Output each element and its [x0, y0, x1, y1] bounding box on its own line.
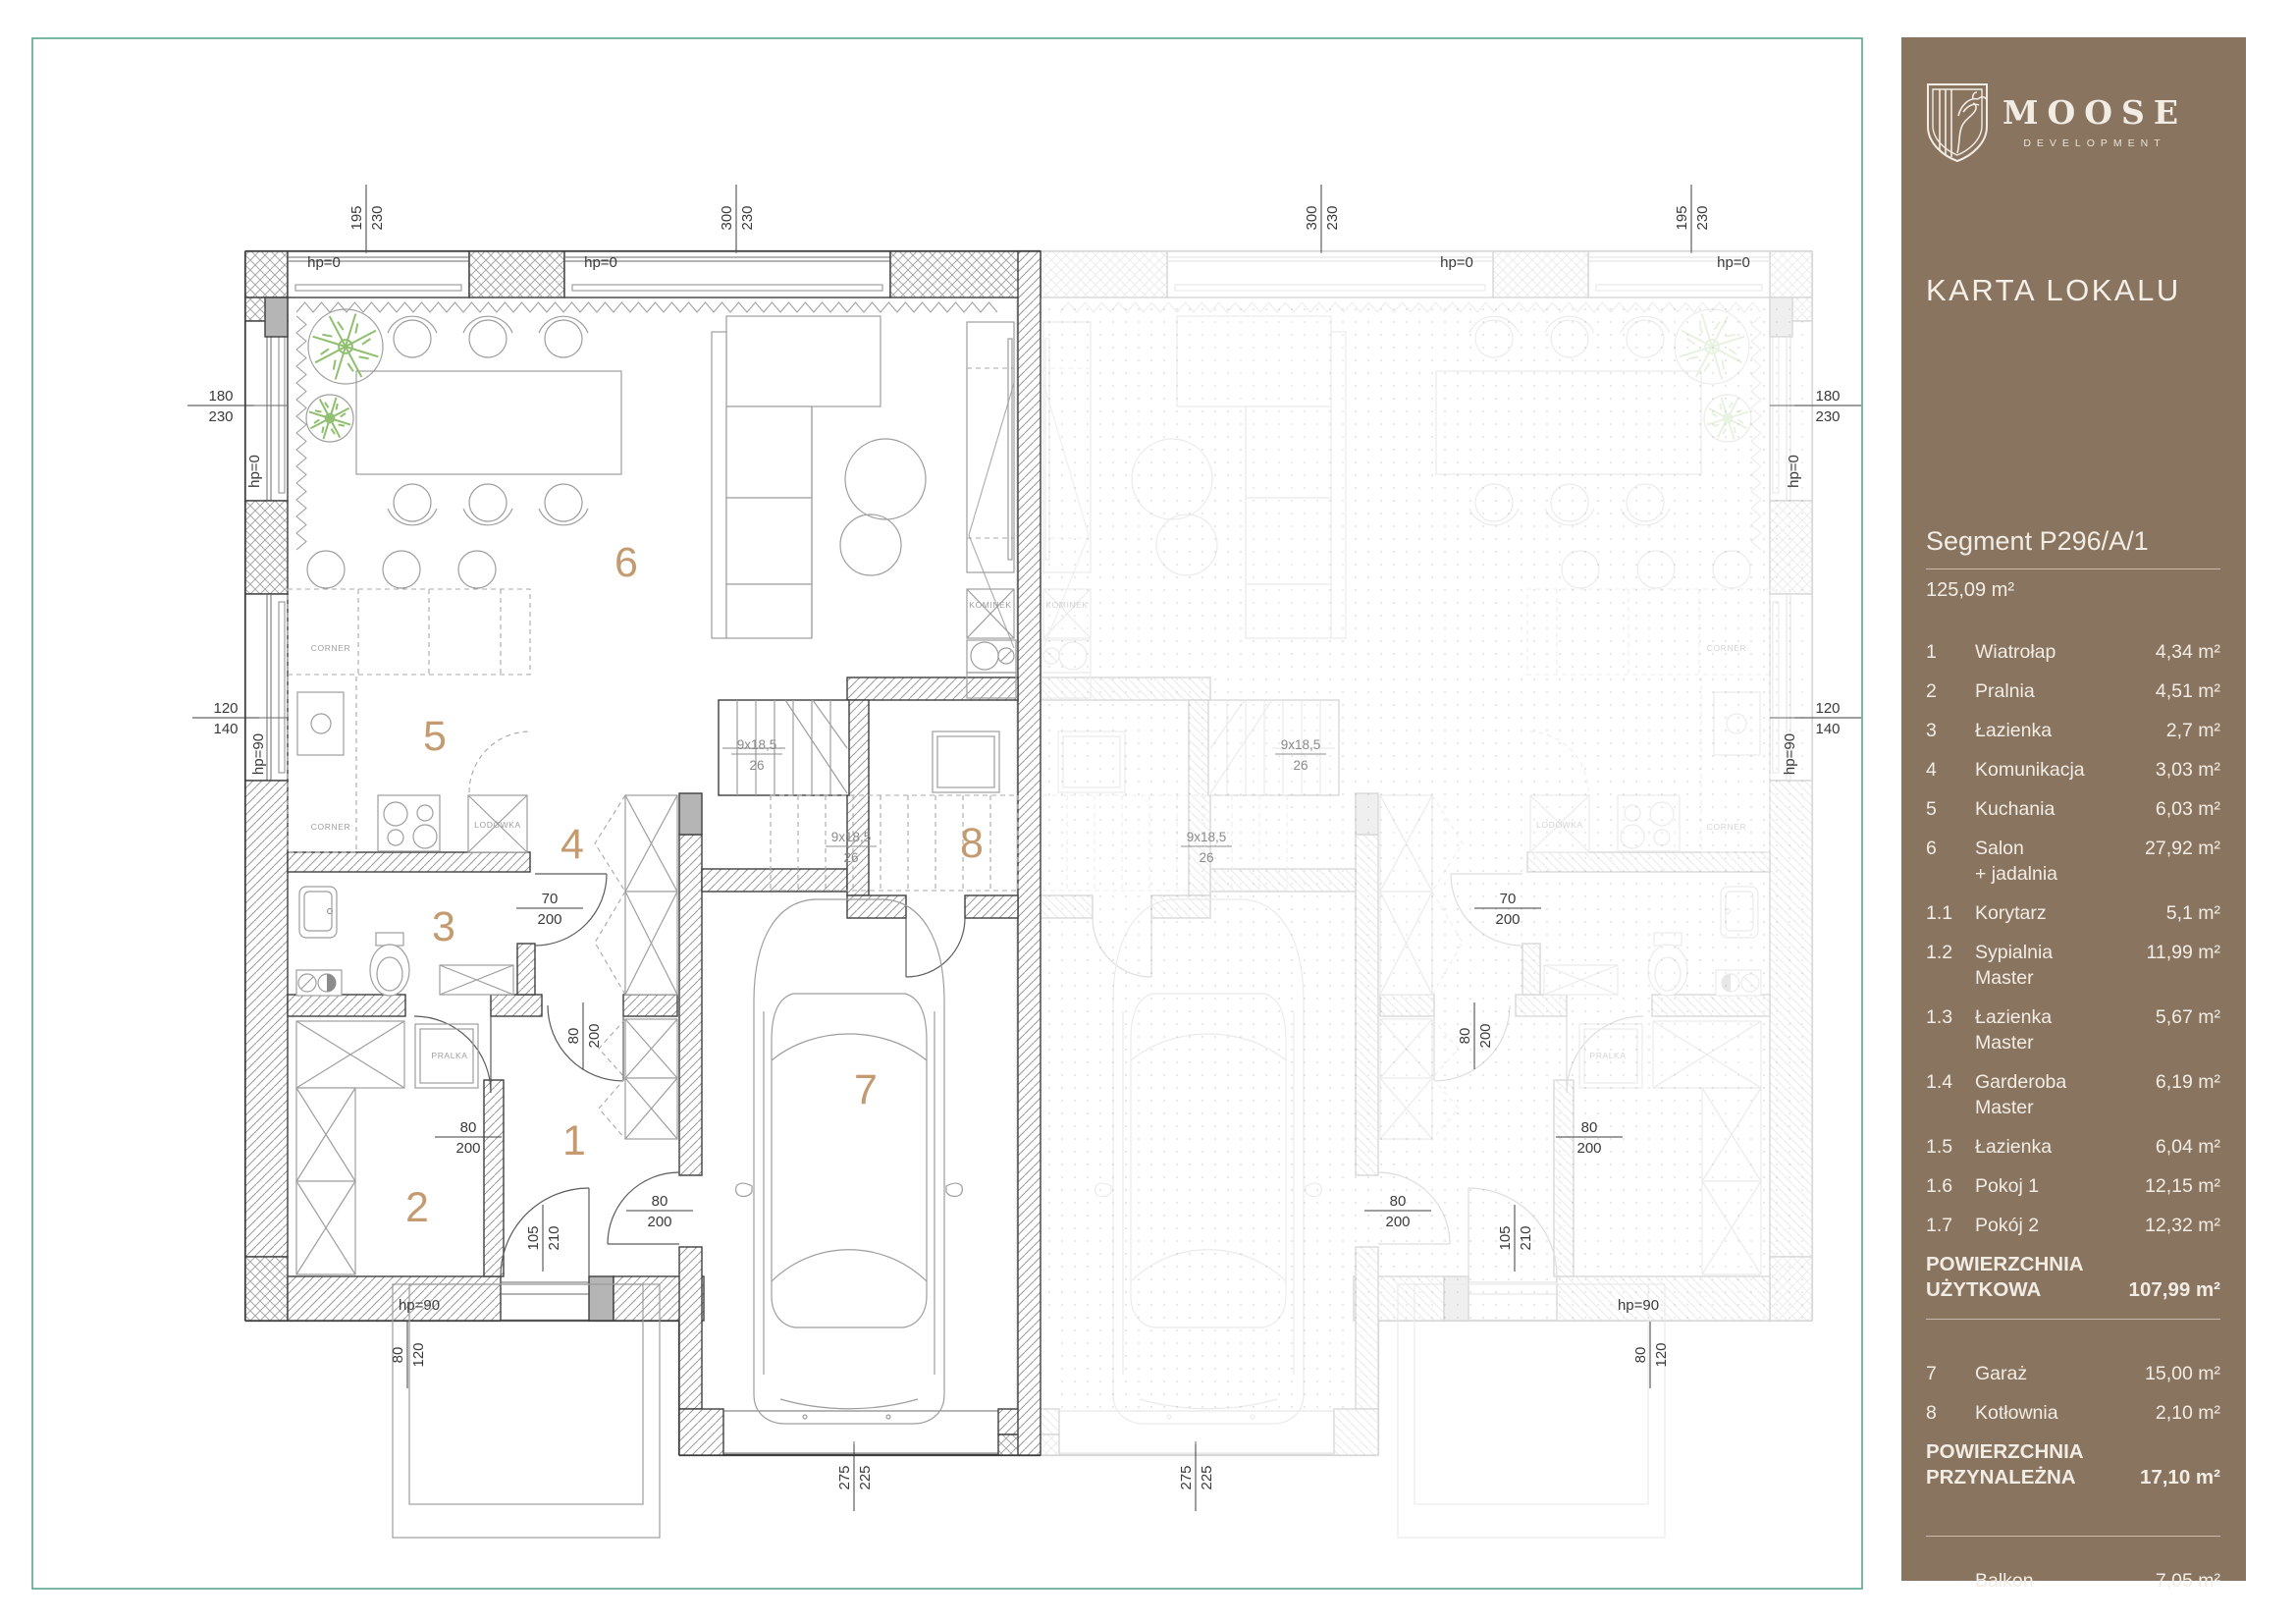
room-nm: Pokoj 1 [1975, 1173, 2122, 1199]
svg-text:210: 210 [1518, 1225, 1534, 1250]
svg-text:225: 225 [857, 1465, 874, 1489]
room-number-6: 6 [614, 539, 638, 586]
plan-label: CORNER [1707, 822, 1746, 832]
plan-label: PRALKA [431, 1051, 467, 1060]
plan-label: hp=0 [584, 254, 617, 271]
svg-text:200: 200 [1477, 1023, 1494, 1048]
balcony-label: Balkon [1975, 1568, 2122, 1594]
svg-text:80: 80 [1581, 1119, 1598, 1136]
svg-text:70: 70 [542, 891, 559, 907]
svg-text:140: 140 [213, 721, 238, 737]
belonging-area-label: POWIERZCHNIA PRZYNALEŻNA [1926, 1439, 2127, 1490]
plan-label: hp=90 [1782, 733, 1798, 775]
room-no: 7 [1926, 1361, 1975, 1386]
room-row: 2Pralnia4,51 m² [1926, 678, 2220, 704]
room-ar: 11,99 m² [2122, 940, 2220, 965]
svg-text:300: 300 [1304, 205, 1320, 230]
room-row: 1.2Sypialnia Master11,99 m² [1926, 940, 2220, 991]
usable-area-label: POWIERZCHNIA UŻYTKOWA [1926, 1252, 2127, 1303]
brand-logo: MOOSE DEVELOPMENT [1926, 82, 2220, 163]
svg-text:120: 120 [1653, 1342, 1670, 1367]
room-row: 1.6Pokoj 112,15 m² [1926, 1173, 2220, 1199]
svg-text:230: 230 [1324, 205, 1341, 230]
room-nm: Garaż [1975, 1361, 2122, 1386]
dimension-label: 80120 [1632, 1322, 1670, 1388]
room-no: 6 [1926, 836, 1975, 861]
plan-label: hp=0 [1440, 254, 1473, 271]
plan-label: PRALKA [1589, 1051, 1626, 1060]
plan-label: hp=0 [1717, 254, 1750, 271]
room-row: 3Łazienka2,7 m² [1926, 718, 2220, 743]
svg-text:180: 180 [208, 388, 233, 405]
room-number-7: 7 [854, 1066, 878, 1113]
usable-area-row: POWIERZCHNIA UŻYTKOWA 107,99 m² [1926, 1252, 2220, 1303]
divider [1926, 1319, 2220, 1320]
svg-text:80: 80 [460, 1119, 477, 1136]
room-no: 2 [1926, 678, 1975, 704]
room-row: 1Wiatrołap4,34 m² [1926, 639, 2220, 665]
room-number-4: 4 [561, 821, 584, 868]
room-ar: 6,04 m² [2122, 1134, 2220, 1160]
room-no: 1.2 [1926, 940, 1975, 965]
dimension-label: 300230 [1304, 185, 1341, 251]
dimension-label: 80120 [390, 1322, 427, 1388]
room-ar: 5,1 m² [2122, 900, 2220, 926]
dimension-label: 70200 [516, 891, 583, 928]
room-nm: Korytarz [1975, 900, 2122, 926]
svg-text:195: 195 [348, 205, 365, 230]
svg-text:230: 230 [1694, 205, 1711, 230]
svg-text:200: 200 [647, 1214, 671, 1230]
plan-label: KOMINEK [1045, 600, 1088, 610]
active-unit [245, 251, 1041, 1538]
room-row: 8Kotłownia2,10 m² [1926, 1400, 2220, 1426]
room-nm: Wiatrołap [1975, 639, 2122, 665]
svg-text:200: 200 [1385, 1214, 1410, 1230]
svg-text:9x18,5: 9x18,5 [1187, 830, 1227, 844]
svg-text:26: 26 [749, 758, 764, 773]
room-no: 8 [1926, 1400, 1975, 1426]
svg-text:105: 105 [525, 1225, 542, 1250]
room-ar: 6,03 m² [2122, 796, 2220, 822]
svg-text:80: 80 [1632, 1347, 1649, 1364]
plan-label: hp=0 [1786, 455, 1802, 488]
divider [1926, 1536, 2220, 1537]
room-ar: 15,00 m² [2122, 1361, 2220, 1386]
room-ar: 12,32 m² [2122, 1213, 2220, 1238]
room-ar: 6,19 m² [2122, 1069, 2220, 1095]
svg-text:80: 80 [652, 1193, 668, 1210]
room-ar: 3,03 m² [2122, 757, 2220, 783]
svg-text:9x18,5: 9x18,5 [737, 737, 777, 752]
svg-text:9x18,5: 9x18,5 [1281, 737, 1321, 752]
room-row: 1.5Łazienka6,04 m² [1926, 1134, 2220, 1160]
svg-text:195: 195 [1674, 205, 1690, 230]
usable-area-value: 107,99 m² [2127, 1277, 2220, 1303]
brand-tagline: DEVELOPMENT [2023, 137, 2165, 149]
svg-text:80: 80 [1390, 1193, 1407, 1210]
divider [1926, 568, 2220, 569]
svg-text:210: 210 [546, 1225, 562, 1250]
svg-text:230: 230 [369, 205, 386, 230]
room-ar: 27,92 m² [2122, 836, 2220, 861]
room-nm: Salon + jadalnia [1975, 836, 2122, 887]
room-nm: Łazienka Master [1975, 1004, 2122, 1056]
room-nm: Łazienka [1975, 1134, 2122, 1160]
room-ar: 4,51 m² [2122, 678, 2220, 704]
dimension-label: 195230 [348, 185, 386, 251]
room-ar: 2,7 m² [2122, 718, 2220, 743]
room-nm: Pokój 2 [1975, 1213, 2122, 1238]
plan-label: LODÓWKA [1536, 820, 1583, 830]
svg-text:120: 120 [410, 1342, 427, 1367]
room-nm: Łazienka [1975, 718, 2122, 743]
room-number-1: 1 [562, 1117, 586, 1164]
page-title: KARTA LOKALU [1926, 273, 2220, 308]
room-ar: 5,67 m² [2122, 1004, 2220, 1030]
svg-text:70: 70 [1500, 891, 1517, 907]
room-row: 1.7Pokój 212,32 m² [1926, 1213, 2220, 1238]
svg-text:275: 275 [836, 1465, 853, 1489]
annex-room-list: 7Garaż15,00 m²8Kotłownia2,10 m² [1926, 1361, 2220, 1426]
room-nm: Sypialnia Master [1975, 940, 2122, 991]
room-ar: 2,10 m² [2122, 1400, 2220, 1426]
plan-label: LODÓWKA [474, 820, 521, 830]
room-no: 1.6 [1926, 1173, 1975, 1199]
room-no: 1.3 [1926, 1004, 1975, 1030]
belonging-area-value: 17,10 m² [2127, 1465, 2220, 1490]
balcony-row: Balkon 7,05 m² [1926, 1568, 2220, 1594]
dimension-label: 105210 [525, 1205, 562, 1272]
room-row: 1.3Łazienka Master5,67 m² [1926, 1004, 2220, 1056]
room-ar: 4,34 m² [2122, 639, 2220, 665]
room-row: 1.1Korytarz5,1 m² [1926, 900, 2220, 926]
karta-lokalu-page: 1234567819523030023030023019523018023012… [0, 0, 2296, 1624]
svg-text:80: 80 [565, 1028, 582, 1045]
room-no: 1 [1926, 639, 1975, 665]
room-number-3: 3 [432, 903, 455, 950]
svg-text:9x18,5: 9x18,5 [831, 830, 872, 844]
room-nm: Komunikacja [1975, 757, 2122, 783]
svg-text:230: 230 [208, 408, 233, 425]
brand-name: MOOSE [2002, 96, 2187, 129]
dimension-label: 195230 [1674, 185, 1711, 251]
room-list: 1Wiatrołap4,34 m²2Pralnia4,51 m²3Łazienk… [1926, 639, 2220, 1238]
svg-text:200: 200 [1576, 1140, 1601, 1157]
plan-label: KOMINEK [969, 600, 1011, 610]
room-row: 1.4Garderoba Master6,19 m² [1926, 1069, 2220, 1120]
dimension-label: 80200 [626, 1193, 693, 1230]
svg-text:26: 26 [1199, 850, 1213, 865]
plan-label: CORNER [1707, 643, 1746, 653]
room-number-5: 5 [423, 713, 447, 760]
svg-text:230: 230 [739, 205, 756, 230]
room-nm: Pralnia [1975, 678, 2122, 704]
room-row: 5Kuchania6,03 m² [1926, 796, 2220, 822]
svg-text:230: 230 [1815, 408, 1840, 425]
dimension-label: 180230 [187, 388, 254, 425]
svg-text:80: 80 [1457, 1028, 1473, 1045]
room-number-8: 8 [960, 820, 984, 867]
svg-text:26: 26 [843, 850, 858, 865]
svg-text:140: 140 [1815, 721, 1840, 737]
svg-text:180: 180 [1815, 388, 1840, 405]
svg-text:26: 26 [1293, 758, 1308, 773]
room-ar: 12,15 m² [2122, 1173, 2220, 1199]
moose-shield-icon [1926, 82, 1989, 163]
room-no: 3 [1926, 718, 1975, 743]
plan-label: hp=0 [246, 455, 263, 488]
svg-text:120: 120 [1815, 700, 1840, 717]
svg-text:120: 120 [213, 700, 238, 717]
plan-label: CORNER [311, 643, 350, 653]
belonging-area-row: POWIERZCHNIA PRZYNALEŻNA 17,10 m² [1926, 1439, 2220, 1490]
room-no: 1.7 [1926, 1213, 1975, 1238]
svg-text:200: 200 [586, 1023, 603, 1048]
balcony-area: 7,05 m² [2122, 1568, 2220, 1594]
svg-text:275: 275 [1178, 1465, 1195, 1489]
room-nm: Kuchania [1975, 796, 2122, 822]
room-number-2: 2 [405, 1184, 429, 1231]
plan-label: hp=90 [1618, 1297, 1659, 1314]
plan-label: hp=0 [307, 254, 341, 271]
room-row: 7Garaż15,00 m² [1926, 1361, 2220, 1386]
plan-label: hp=90 [250, 733, 267, 775]
room-no: 1.1 [1926, 900, 1975, 926]
svg-text:300: 300 [719, 205, 735, 230]
dimension-label: 300230 [719, 185, 756, 251]
segment-label: Segment P296/A/1 [1926, 526, 2220, 557]
svg-text:200: 200 [537, 911, 561, 928]
plan-label: CORNER [311, 822, 350, 832]
segment-area: 125,09 m² [1926, 579, 2220, 602]
svg-text:105: 105 [1497, 1225, 1514, 1250]
svg-text:200: 200 [455, 1140, 480, 1157]
room-row: 4Komunikacja3,03 m² [1926, 757, 2220, 783]
room-row: 6Salon + jadalnia27,92 m² [1926, 836, 2220, 887]
svg-text:200: 200 [1495, 911, 1520, 928]
room-no: 4 [1926, 757, 1975, 783]
room-nm: Kotłownia [1975, 1400, 2122, 1426]
room-nm: Garderoba Master [1975, 1069, 2122, 1120]
room-no: 5 [1926, 796, 1975, 822]
unit-card-panel: MOOSE DEVELOPMENT KARTA LOKALU Segment P… [1901, 37, 2246, 1581]
room-no: 1.4 [1926, 1069, 1975, 1095]
svg-text:225: 225 [1199, 1465, 1215, 1489]
plan-label: hp=90 [399, 1297, 440, 1314]
room-no: 1.5 [1926, 1134, 1975, 1160]
svg-text:80: 80 [390, 1347, 406, 1364]
